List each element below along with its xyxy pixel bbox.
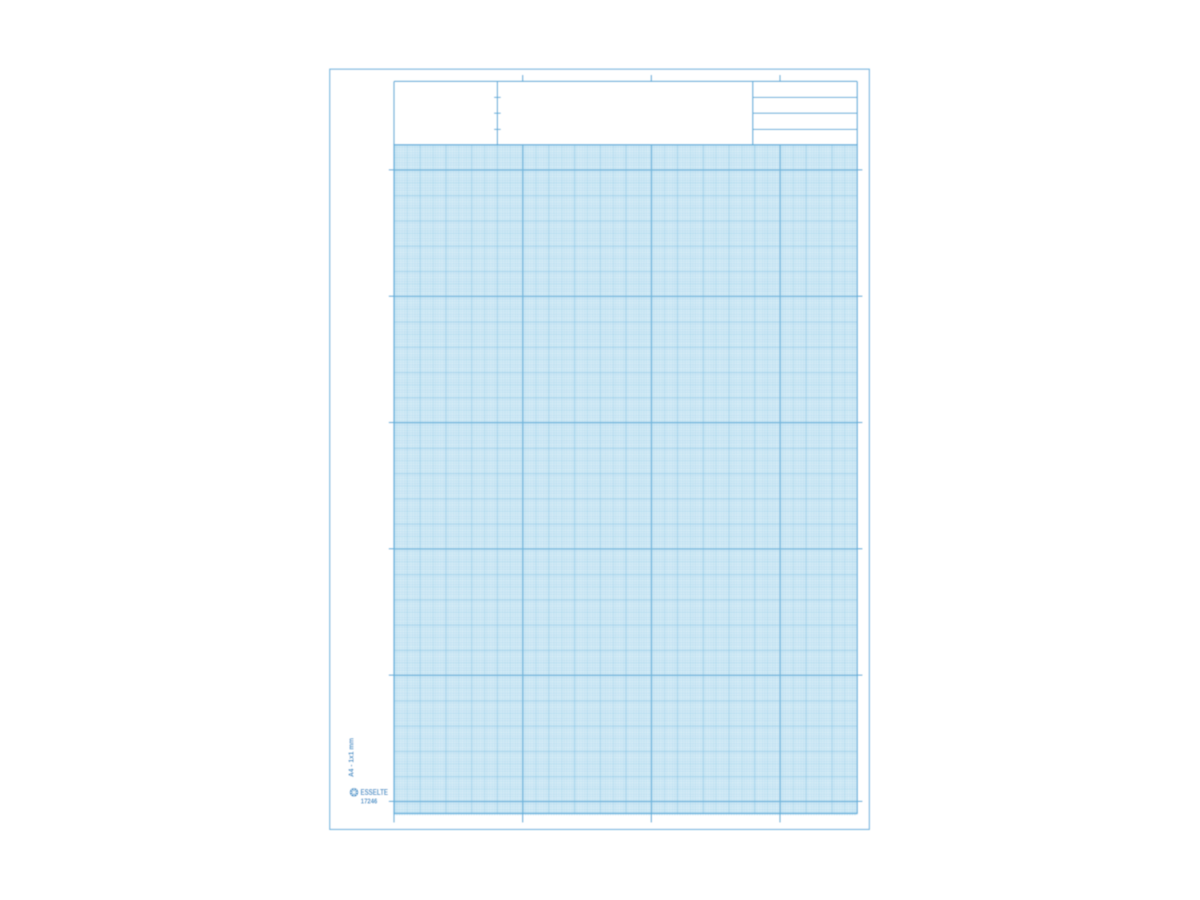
svg-text:A4 - 1x1 mm: A4 - 1x1 mm [347,738,356,777]
svg-text:17246: 17246 [361,798,378,805]
svg-text:ESSELTE: ESSELTE [361,788,389,797]
